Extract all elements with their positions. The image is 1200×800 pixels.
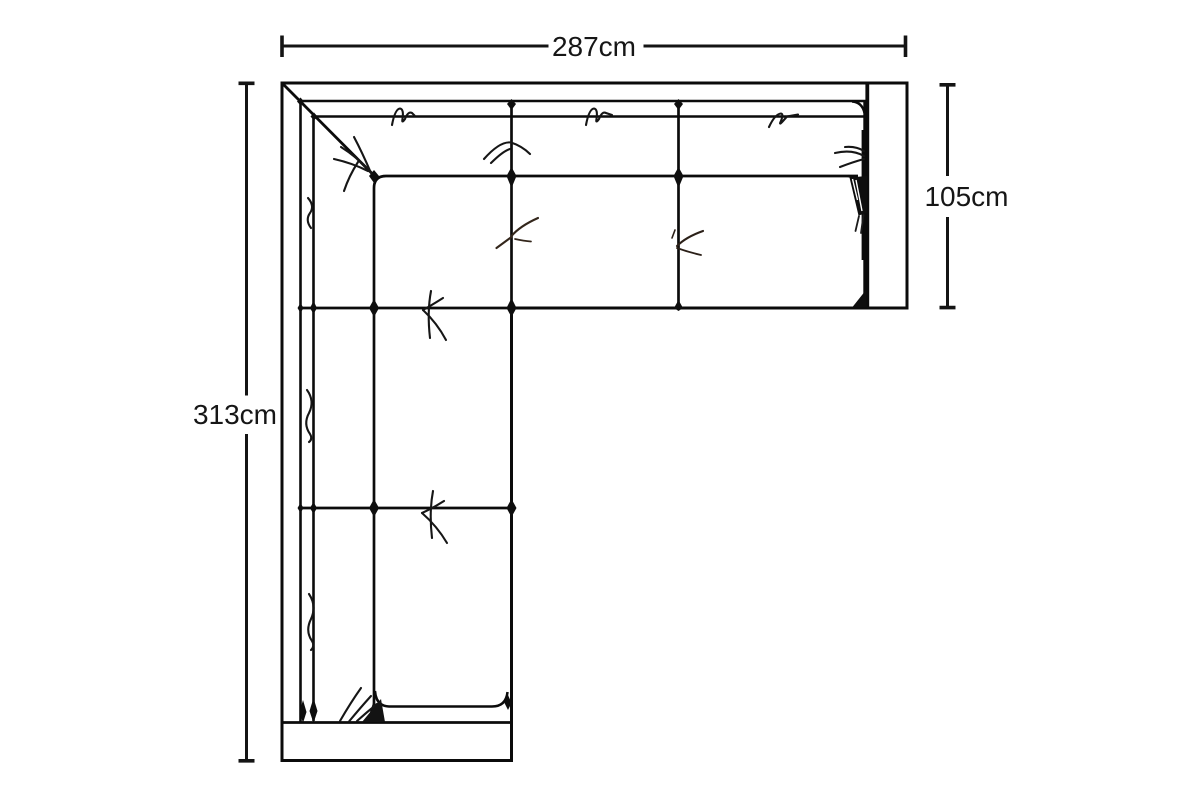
svg-text:287cm: 287cm: [552, 31, 636, 62]
svg-text:105cm: 105cm: [924, 181, 1008, 212]
svg-text:313cm: 313cm: [193, 399, 277, 430]
